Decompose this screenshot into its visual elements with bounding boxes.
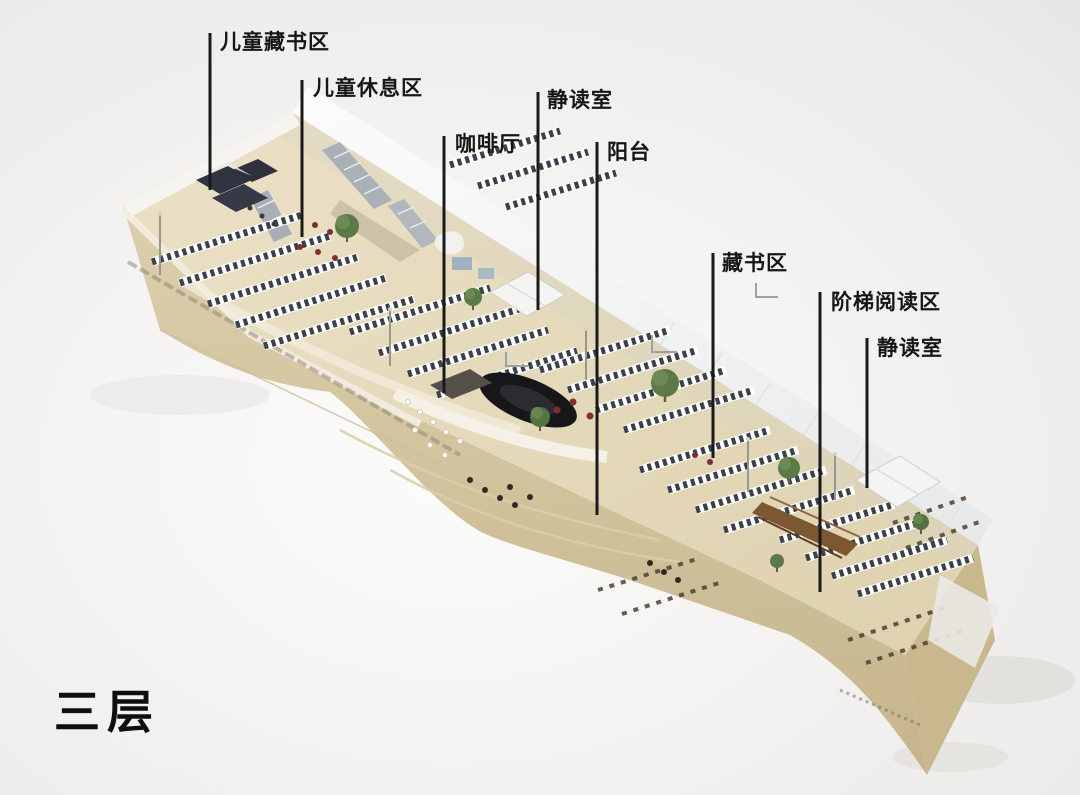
callout-quiet-room-left-label: 静读室 [547,89,613,112]
floor-title: 三层 [54,676,160,742]
callout-stepped-reading-label: 阶梯阅读区 [831,291,941,314]
callout-children-books-label: 儿童藏书区 [220,31,330,54]
callout-cafe-label: 咖啡厅 [455,133,521,156]
callout-children-rest-label: 儿童休息区 [313,77,423,100]
library-floor-diagram: 儿童藏书区 儿童休息区 静读室 咖啡厅 阳台 藏书区 阶梯阅读区 静读室 三层 [0,0,1080,795]
callout-balcony-label: 阳台 [607,141,651,164]
callout-books-label: 藏书区 [722,252,788,275]
axonometric-building-illustration [0,0,1080,795]
callout-quiet-room-right-label: 静读室 [877,337,943,360]
